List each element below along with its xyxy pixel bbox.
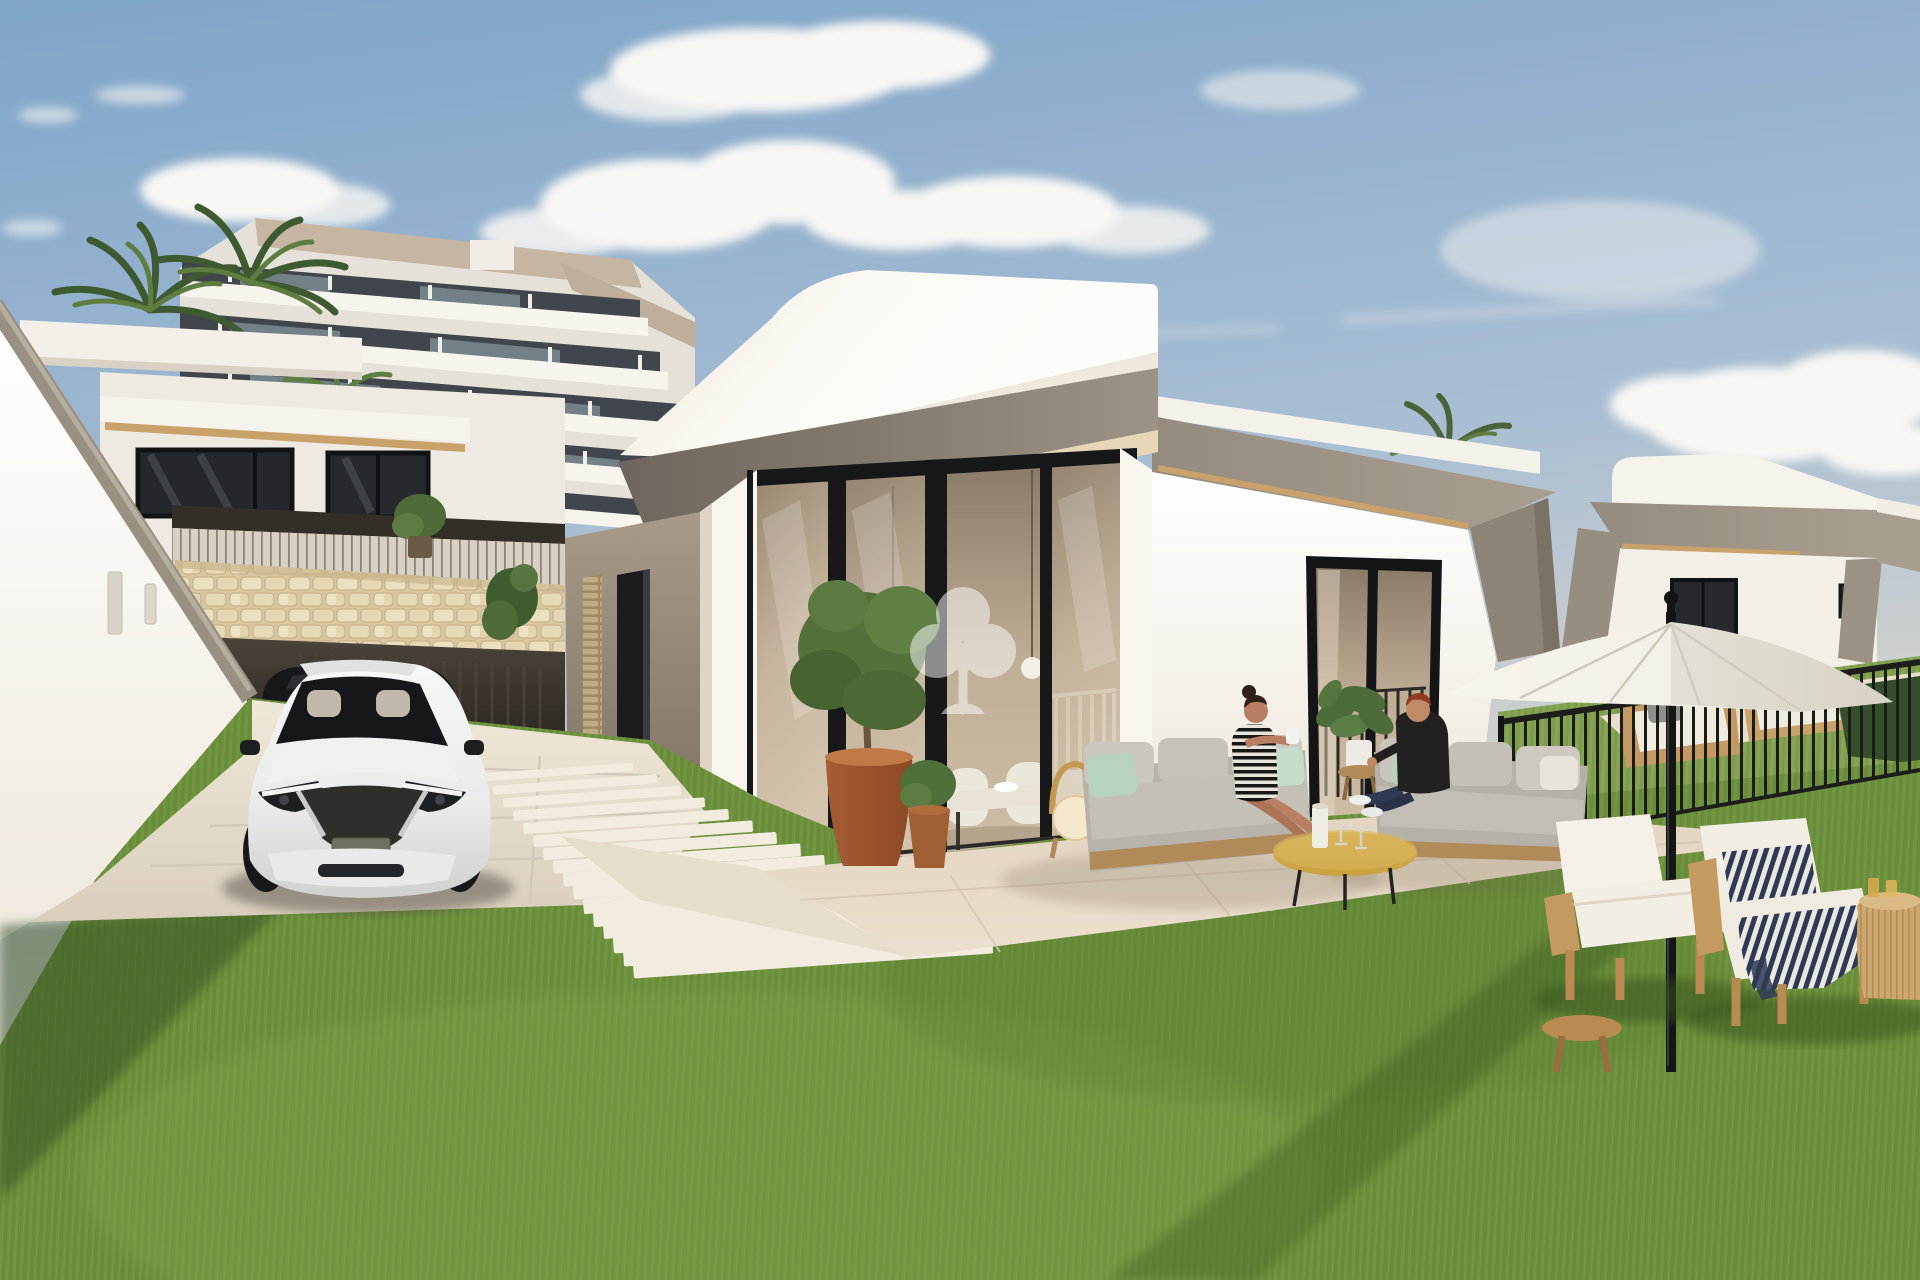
car-mirror-right <box>464 740 484 755</box>
back-cushion <box>1448 742 1512 786</box>
logo-canopy-right <box>962 624 1016 678</box>
terracotta-pot <box>826 755 913 866</box>
wall-vent <box>145 584 156 624</box>
car-headrest <box>307 690 341 717</box>
bumper-intake <box>318 864 404 877</box>
sphere-pendant <box>1021 657 1043 679</box>
man-jacket <box>1396 712 1450 794</box>
wall-vent <box>108 572 122 634</box>
logo-canopy-left <box>910 624 964 678</box>
drink-glass <box>1886 880 1897 897</box>
table-bowl <box>994 782 1018 792</box>
building-roof-box <box>470 240 514 270</box>
barrel-body <box>1857 898 1920 1000</box>
pot-rim <box>825 748 913 766</box>
finial-stem <box>1667 598 1675 624</box>
man-sneaker <box>1349 795 1371 805</box>
slider-stile <box>1040 454 1052 842</box>
table-top-sheen <box>1273 830 1417 870</box>
woman-arm <box>1246 739 1290 744</box>
woman-hair-bun <box>1242 685 1256 699</box>
render-canvas <box>0 0 1920 1280</box>
man-hand <box>1367 757 1377 767</box>
car-headrest <box>376 690 410 717</box>
drink-glass <box>1868 878 1879 897</box>
wicker-side-table <box>1857 878 1920 1000</box>
mint-pillow <box>1086 752 1138 799</box>
candle <box>1312 806 1328 848</box>
candle-top <box>1312 803 1328 809</box>
man-sneaker <box>1361 807 1383 817</box>
villa-render <box>0 0 1920 1280</box>
coffee-cup <box>1286 728 1299 744</box>
back-cushion <box>1158 738 1228 782</box>
white-pillow <box>1540 756 1578 790</box>
car-mirror-left <box>240 740 260 755</box>
villa3-fascia <box>1877 512 1920 572</box>
